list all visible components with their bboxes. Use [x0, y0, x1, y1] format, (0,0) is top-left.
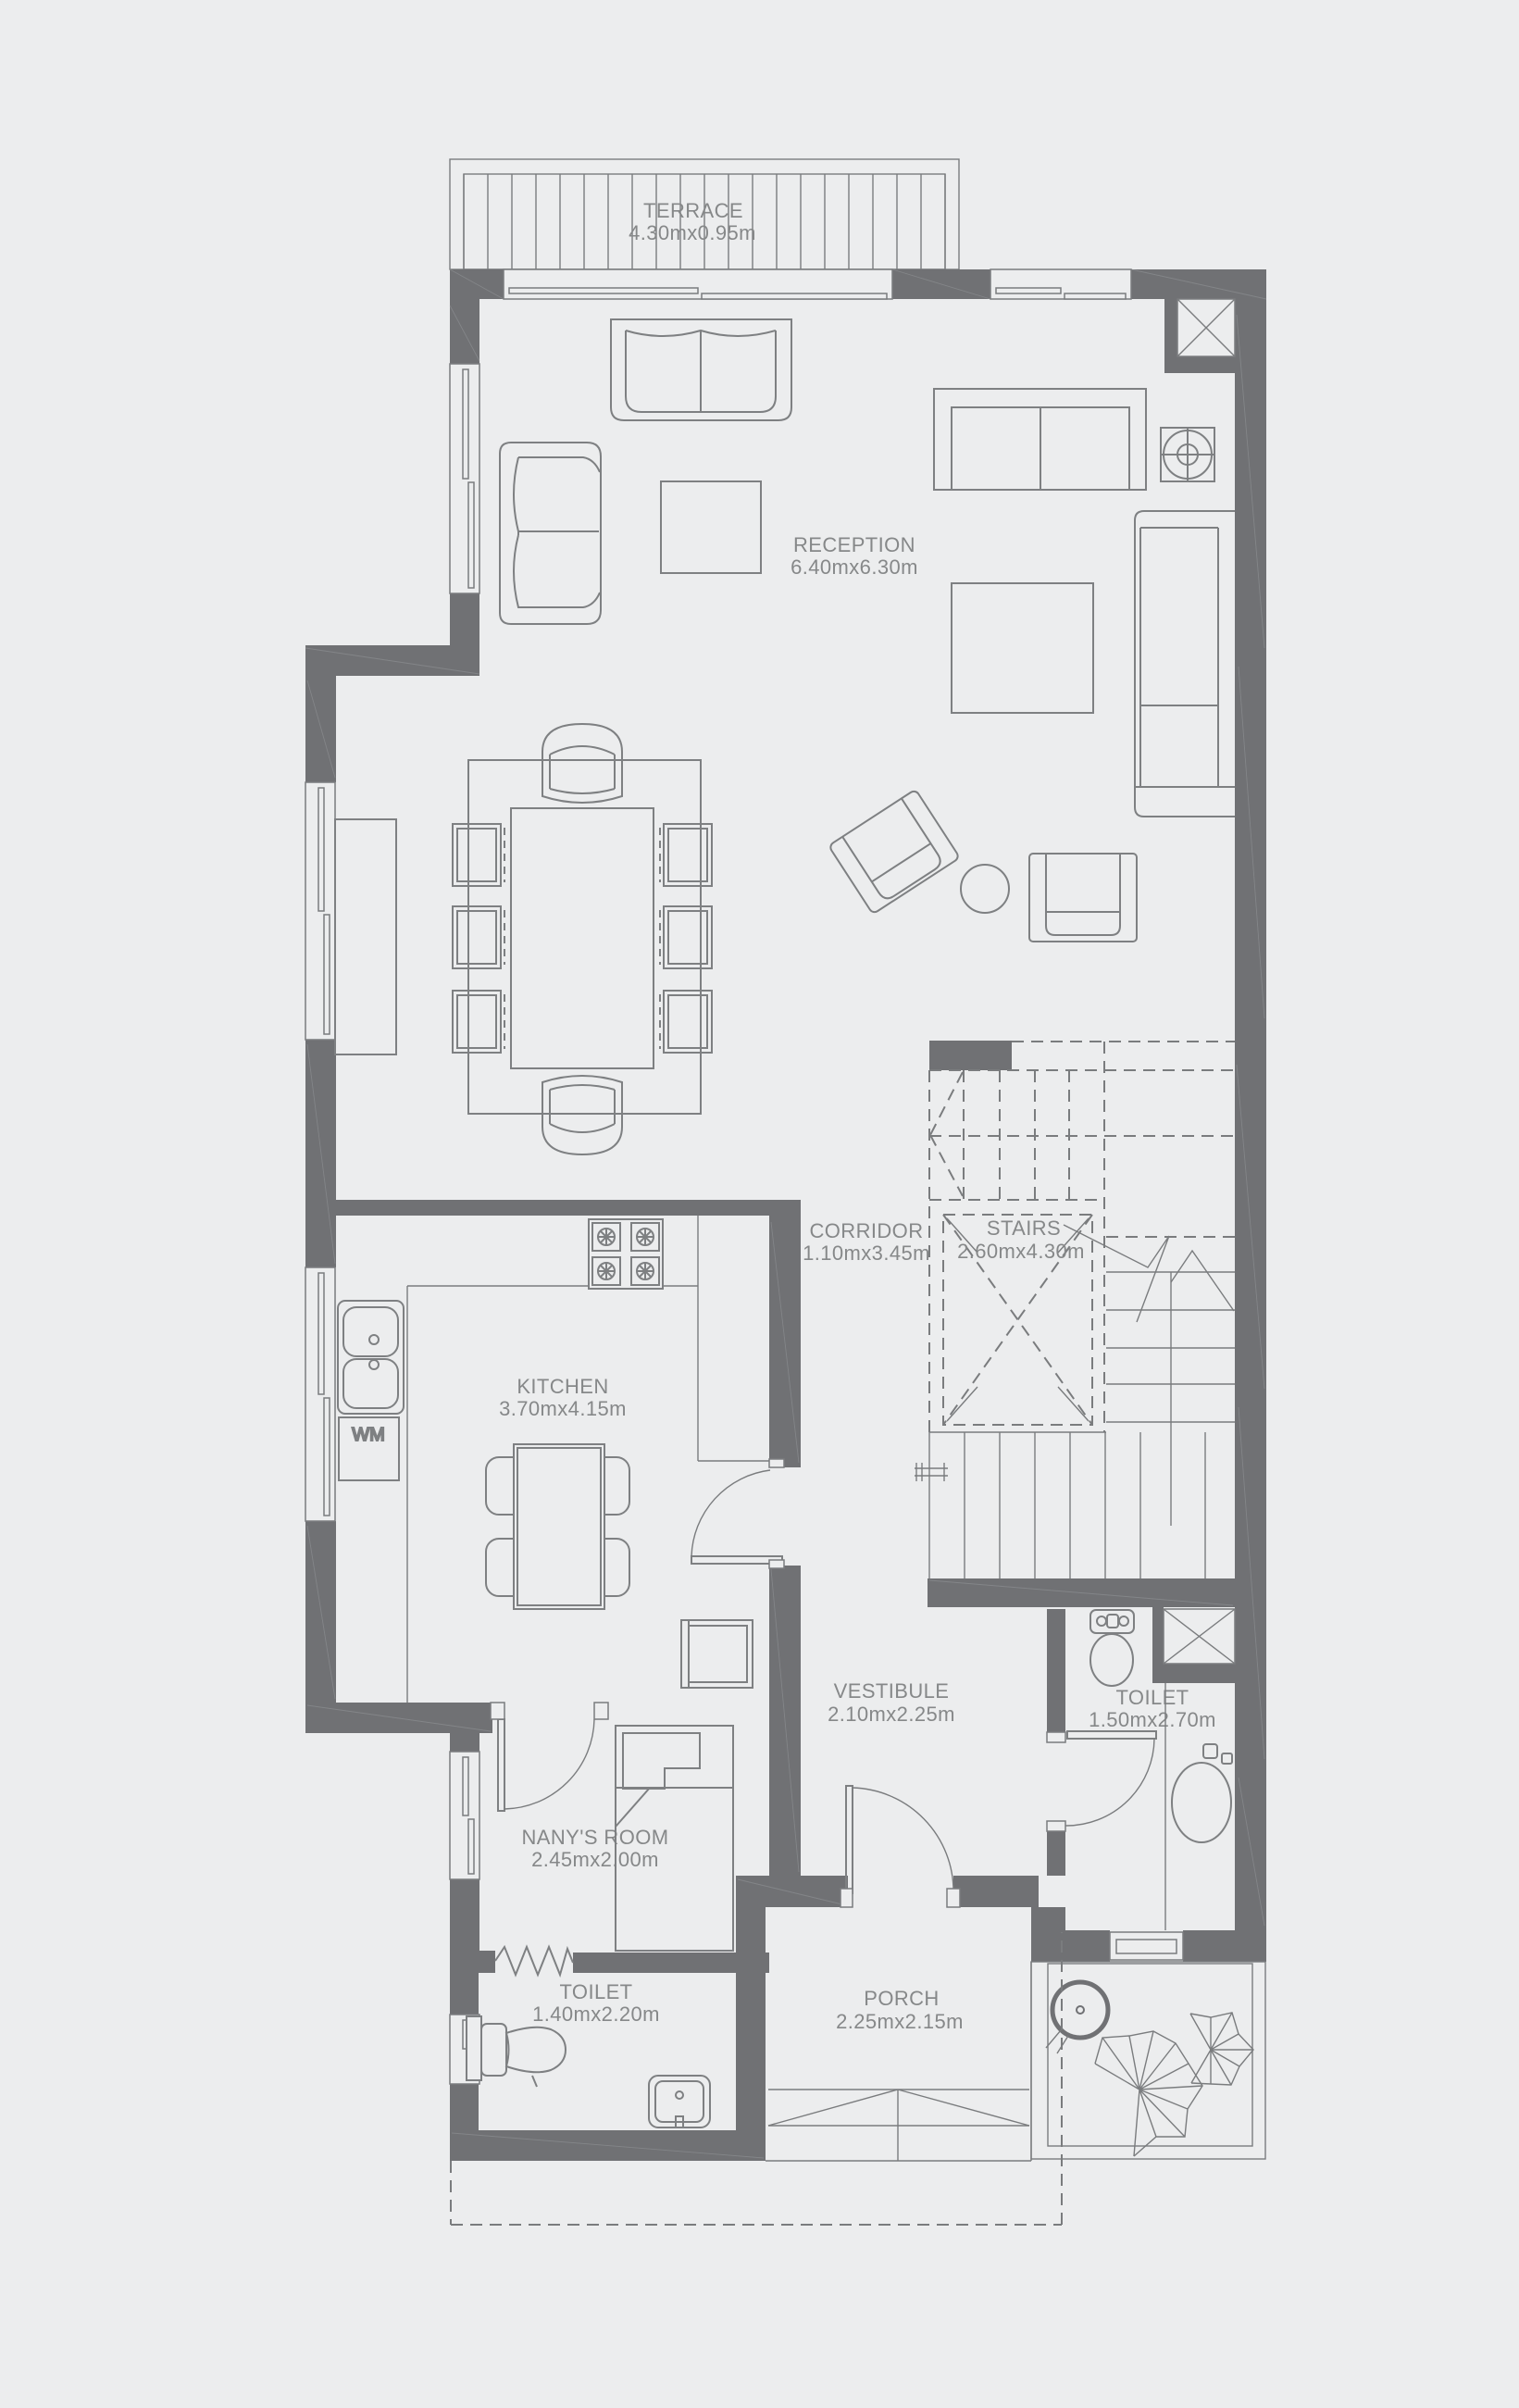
svg-text:1.50mx2.70m: 1.50mx2.70m: [1089, 1708, 1216, 1731]
svg-text:NANY'S ROOM: NANY'S ROOM: [522, 1826, 669, 1849]
svg-text:2.10mx2.25m: 2.10mx2.25m: [828, 1703, 955, 1726]
svg-text:1.10mx3.45m: 1.10mx3.45m: [803, 1241, 930, 1265]
svg-text:TOILET: TOILET: [559, 1980, 632, 2003]
svg-text:2.25mx2.15m: 2.25mx2.15m: [836, 2010, 964, 2033]
svg-text:6.40mx6.30m: 6.40mx6.30m: [791, 555, 918, 579]
svg-text:2.45mx2.00m: 2.45mx2.00m: [531, 1848, 659, 1871]
svg-text:1.40mx2.20m: 1.40mx2.20m: [532, 2003, 660, 2026]
svg-text:TERRACE: TERRACE: [643, 199, 743, 222]
svg-text:3.70mx4.15m: 3.70mx4.15m: [499, 1397, 627, 1420]
svg-text:2.60mx4.30m: 2.60mx4.30m: [957, 1240, 1085, 1263]
svg-text:STAIRS: STAIRS: [987, 1216, 1061, 1240]
svg-text:WM: WM: [352, 1425, 385, 1445]
svg-text:CORRIDOR: CORRIDOR: [810, 1219, 924, 1242]
svg-text:RECEPTION: RECEPTION: [793, 533, 915, 556]
svg-text:KITCHEN: KITCHEN: [517, 1375, 608, 1398]
svg-text:VESTIBULE: VESTIBULE: [834, 1679, 950, 1703]
svg-text:PORCH: PORCH: [864, 1987, 939, 2010]
svg-text:TOILET: TOILET: [1115, 1686, 1189, 1709]
svg-text:4.30mx0.95m: 4.30mx0.95m: [629, 221, 756, 244]
